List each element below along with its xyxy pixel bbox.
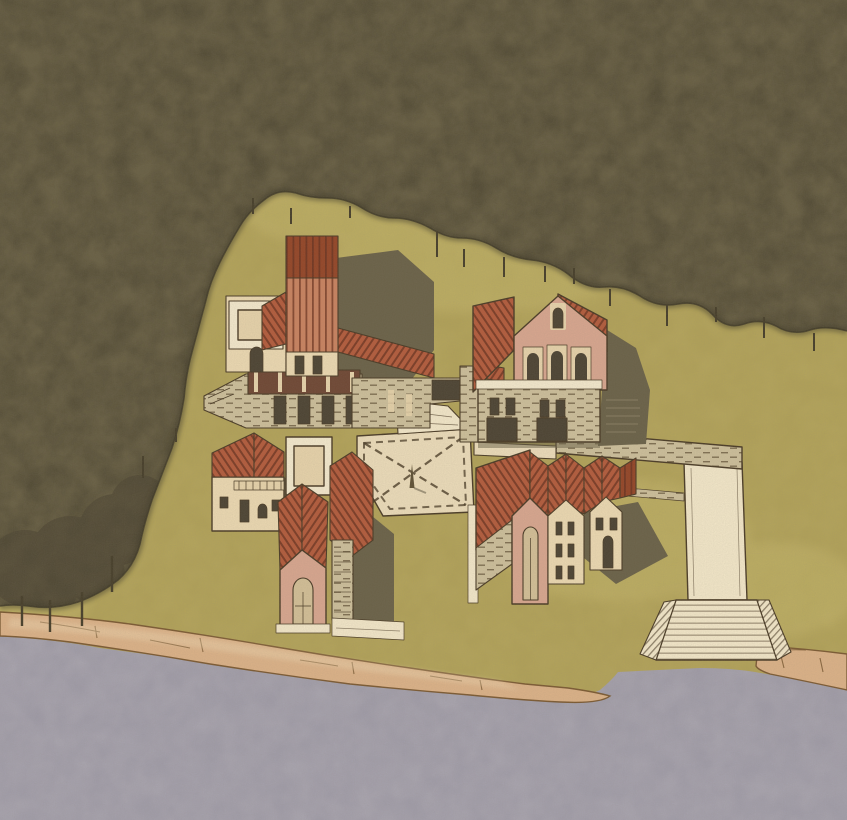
watercolor-illustration [0, 0, 847, 820]
scene-canvas [0, 0, 847, 820]
paper-grain [0, 0, 847, 820]
